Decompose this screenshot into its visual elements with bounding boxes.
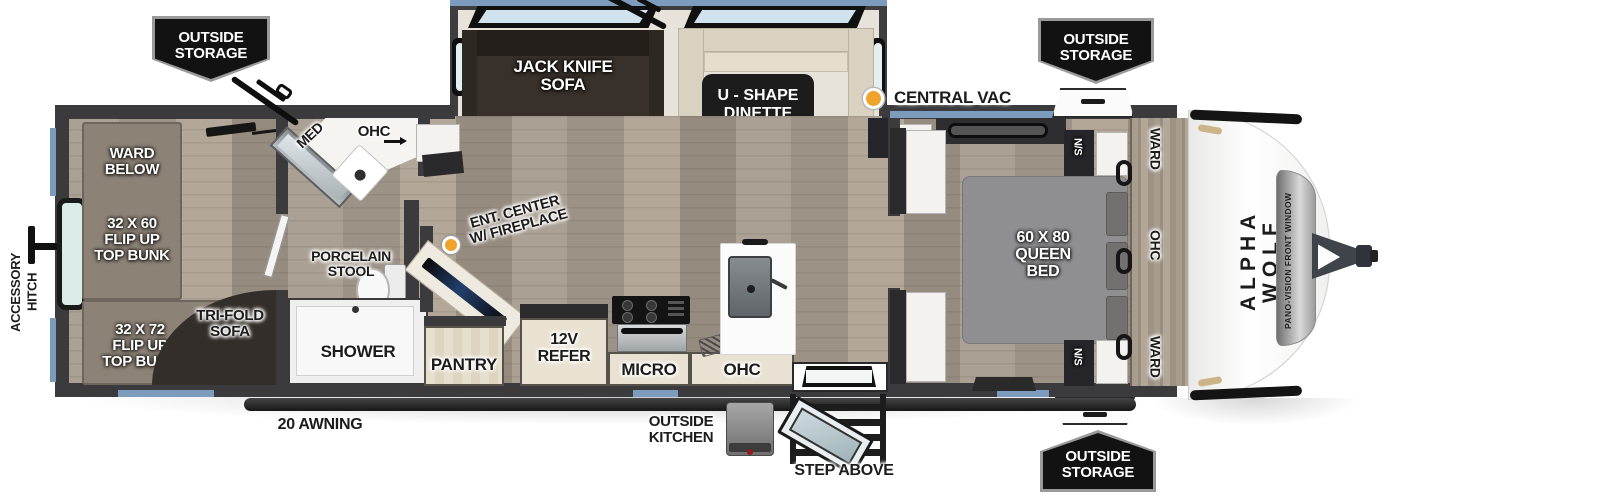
outside-storage-tag-face: OUTSIDE STORAGE (1041, 21, 1151, 81)
ward-top-label: WARD (1148, 128, 1163, 170)
ward-below-label: WARD BELOW (82, 146, 182, 178)
awning-bar (244, 398, 1136, 411)
handle-loop-icon (1116, 334, 1132, 360)
blue-trim (50, 318, 56, 382)
burner-icon (622, 300, 633, 311)
outside-storage-tag-face: OUTSIDE STORAGE (155, 19, 267, 79)
cooktop-icon (612, 296, 690, 324)
knob-strip-icon (668, 301, 684, 319)
shower-valve-icon (352, 306, 359, 313)
porcelain-stool-label: PORCELAIN STOOL (300, 249, 402, 278)
pano-vision-label: PANO-VISION FRONT WINDOW (1284, 188, 1293, 333)
kitchen-sink-icon (728, 256, 772, 318)
bedroom-entry-cabinet-cap (890, 128, 906, 214)
dinette-seat-back (678, 28, 874, 52)
storage-hatch-handle (1083, 412, 1107, 417)
slideout-blue-trim (450, 0, 887, 6)
slideout-window-glass (478, 10, 648, 23)
headboard-cushion (1106, 192, 1128, 236)
handle-loop-icon (1116, 160, 1132, 186)
outside-storage-label: OUTSIDE STORAGE (1062, 441, 1135, 481)
bath-ohc-label: OHC (352, 124, 396, 140)
burner-icon (622, 312, 633, 323)
jack-knife-sofa-label: JACK KNIFE SOFA (478, 58, 648, 94)
outside-storage-tag-face: OUTSIDE STORAGE (1043, 433, 1153, 489)
blue-trim (890, 111, 1062, 118)
pantry-label: PANTRY (424, 356, 504, 374)
micro-label: MICRO (608, 361, 690, 379)
bunk-top-label: 32 X 60 FLIP UP TOP BUNK (82, 216, 182, 263)
queen-bed-label: 60 X 80 QUEEN BED (978, 230, 1108, 280)
wall-bunkroom-partition (276, 290, 288, 386)
sink-drain-icon (747, 285, 755, 293)
outside-storage-tag: OUTSIDE STORAGE (152, 16, 270, 82)
accessory-hitch-label: ACCESSORY HITCH (8, 238, 41, 346)
outside-storage-label: OUTSIDE STORAGE (1060, 32, 1133, 70)
bedroom-ohc-label: OHC (1148, 230, 1163, 260)
front-window-band (1276, 170, 1316, 346)
outside-kitchen-label: OUTSIDE KITCHEN (638, 414, 724, 446)
outside-kitchen-knob-icon (747, 449, 753, 455)
shower-label: SHOWER (288, 343, 428, 361)
entry-door-window-icon (802, 366, 876, 387)
burner-icon (646, 300, 657, 311)
outside-kitchen-box (726, 402, 774, 456)
outside-storage-tag: OUTSIDE STORAGE (1040, 430, 1156, 492)
outside-storage-label: OUTSIDE STORAGE (175, 30, 248, 68)
bedroom-window-icon (972, 377, 1036, 391)
range-handle-icon (621, 328, 683, 334)
step-rail (880, 394, 886, 464)
dinette-seat-inner (704, 52, 848, 72)
burner-icon (646, 312, 657, 323)
kitchen-ohc-label: OHC (690, 361, 794, 379)
wall-top-left (55, 105, 455, 119)
step-above-label: STEP ABOVE (788, 463, 900, 480)
jack-knife-sofa-arm (462, 30, 477, 120)
range-front (617, 324, 687, 352)
blue-trim (997, 390, 1049, 397)
refer-label: 12V REFER (520, 332, 608, 366)
trifold-sofa-label: TRI-FOLD SOFA (178, 308, 282, 340)
blue-trim (633, 390, 678, 397)
bedroom-entry-cabinet-cap (890, 290, 906, 384)
bedroom-entry-cabinet (906, 130, 946, 214)
wall-pantry-top (424, 316, 506, 326)
bedroom-window-icon (948, 123, 1048, 138)
slideout-side-window-glass (874, 43, 882, 93)
dinette-seat-left (678, 28, 704, 124)
bath-ohc-arrowhead-icon (400, 137, 407, 145)
bedroom-entry-cabinet (906, 292, 946, 382)
outside-storage-tag: OUTSIDE STORAGE (1038, 18, 1154, 84)
bath-faucet-icon (352, 167, 368, 183)
ward-bottom-label: WARD (1148, 336, 1163, 378)
slideout-window-glass (694, 10, 856, 23)
awning-label: 20 AWNING (265, 417, 375, 434)
shower-pan (296, 306, 414, 376)
nightstand-label: N/S (1071, 138, 1083, 155)
counter-handle-icon (742, 239, 768, 245)
overhead-cabinet-cap (422, 151, 464, 177)
blue-trim (118, 390, 214, 397)
rv-floorplan: JACK KNIFE SOFA U - SHAPE DINETTE WARD B… (0, 0, 1600, 497)
blue-trim (50, 128, 56, 196)
storage-hatch-handle (1081, 99, 1105, 104)
hitch-coupler-tip-icon (1370, 250, 1378, 262)
handle-loop-icon (1116, 248, 1132, 274)
central-vac-label: CENTRAL VAC (894, 89, 1024, 107)
nightstand-label: N/S (1071, 348, 1083, 365)
jack-knife-sofa-arm (649, 30, 664, 120)
central-vac-icon (863, 88, 884, 109)
jack-knife-sofa-back (462, 30, 664, 56)
dinette-seat-right (848, 28, 874, 124)
ground-shadow-front (1150, 398, 1360, 426)
